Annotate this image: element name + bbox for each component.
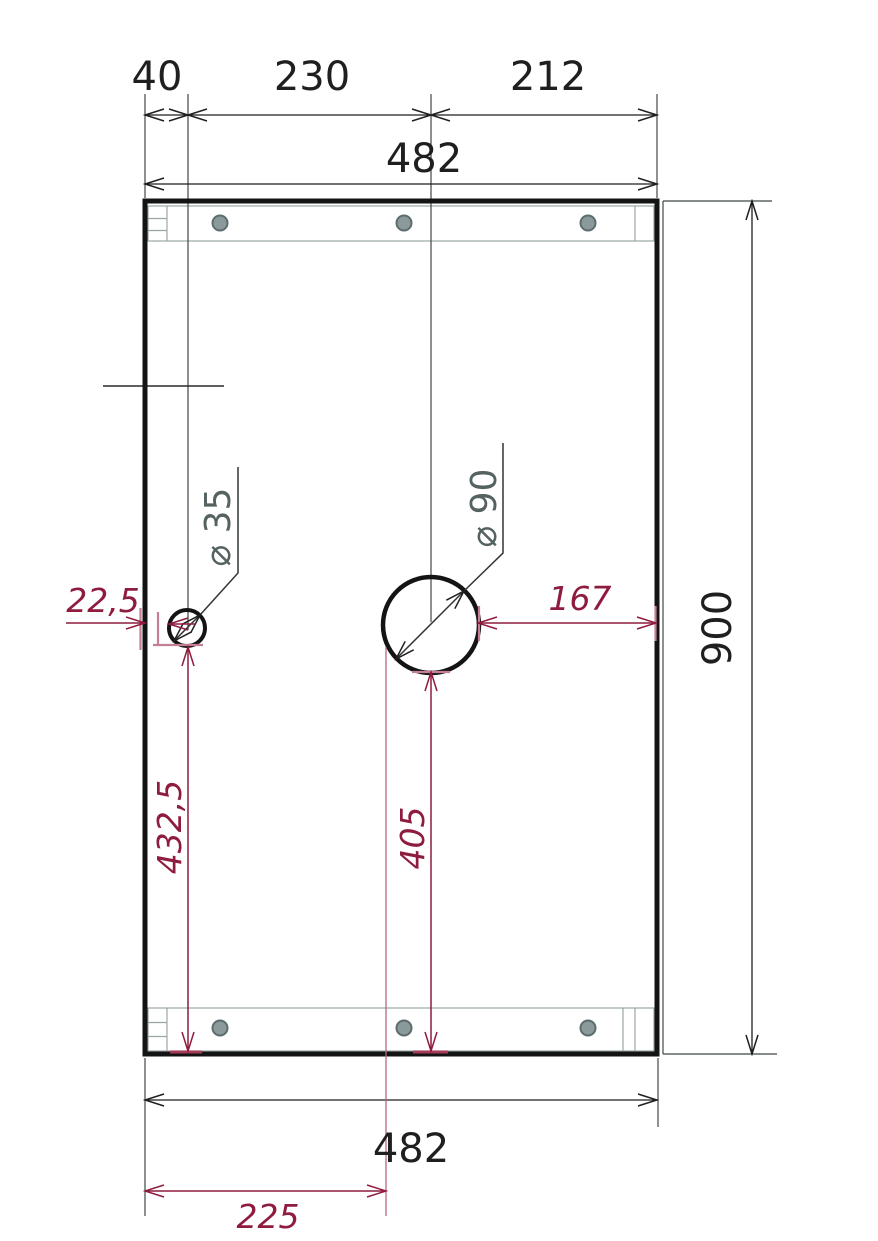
dim-225-label: 225 (237, 1197, 300, 1236)
dim-900-label: 900 (695, 590, 741, 666)
screw-icon (581, 1021, 596, 1036)
dim-22-5-label: 22,5 (66, 581, 139, 620)
dia-35-label: ⌀ 35 (198, 488, 239, 567)
dim-167-label: 167 (549, 579, 612, 618)
dim-405-label: 405 (393, 807, 432, 870)
panel-drilling-drawing: 40 230 212 482 482 900 22,5 167 432,5 40… (0, 0, 878, 1241)
screw-icon (397, 1021, 412, 1036)
dia-90-label: ⌀ 90 (464, 469, 505, 548)
dim-432-5-label: 432,5 (150, 780, 189, 874)
dim-482-top-label: 482 (386, 136, 462, 182)
dim-40-label: 40 (132, 54, 183, 100)
screw-icon (581, 216, 596, 231)
screw-icon (397, 216, 412, 231)
dim-212-label: 212 (510, 54, 586, 100)
screw-icon (213, 216, 228, 231)
screw-icon (213, 1021, 228, 1036)
dim-482-bottom-label: 482 (373, 1126, 449, 1172)
dim-230-label: 230 (274, 54, 350, 100)
technical-drawing-page: 40 230 212 482 482 900 22,5 167 432,5 40… (0, 0, 878, 1241)
